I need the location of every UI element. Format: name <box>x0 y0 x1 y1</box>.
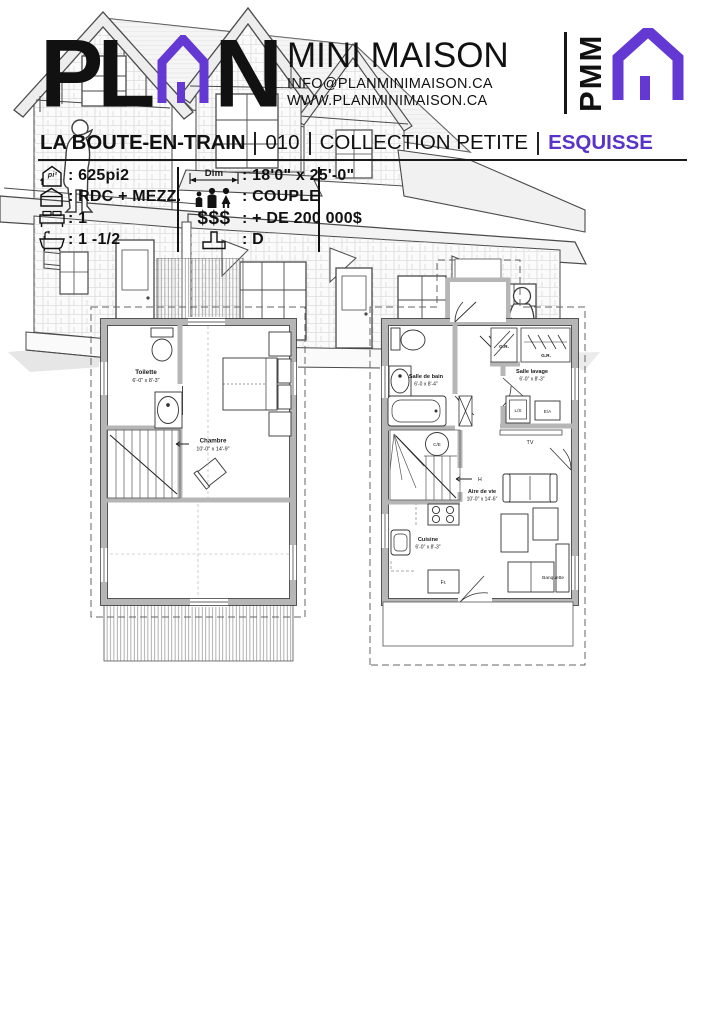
monogram-divider <box>564 32 567 114</box>
monogram-house-icon <box>611 28 685 100</box>
mezz-chambre-label: Chambre <box>200 438 227 445</box>
logo-text-n: N <box>214 26 277 123</box>
brand-website: WWW.PLANMINIMAISON.CA <box>287 93 509 110</box>
header: PL N MINI MAISON INFO@PLANMINIMAISON.CA … <box>40 28 685 120</box>
brand-block: MINI MAISON INFO@PLANMINIMAISON.CA WWW.P… <box>287 28 509 110</box>
specs-divider-1 <box>177 167 179 252</box>
logo-text-pl: PL <box>40 26 149 123</box>
rdc-lavage-label: Salle lavage <box>516 369 548 375</box>
spec-dimensions: Dim : 18'0" x 25'-0" <box>186 165 362 187</box>
brand-email: INFO@PLANMINIMAISON.CA <box>287 76 509 93</box>
dim-label: Dim <box>205 168 224 179</box>
spec-area: pi² : 625pi2 <box>38 165 181 187</box>
rdc-coffee-table <box>501 514 528 552</box>
mezz-bed <box>223 358 277 410</box>
title-bar: LA BOUTE-EN-TRAIN 010 COLLECTION PETITE … <box>40 131 685 155</box>
rdc-rear-porch <box>383 602 573 646</box>
rdc-outer-wall <box>385 322 575 602</box>
spec-dimensions-value: : 18'0" x 25'-0" <box>242 167 354 185</box>
levels-icon <box>38 187 68 207</box>
rdc-fridge-label: Fr. <box>441 580 447 586</box>
rdc-armchair <box>533 508 558 540</box>
mezz-sink <box>155 392 182 428</box>
mezz-toilette-label: Toilette <box>135 369 157 376</box>
mezz-toilette-dims: 6'-0" x 8'-3" <box>132 378 159 384</box>
logo: PL N <box>40 28 277 123</box>
spec-price-value: : + DE 200 000$ <box>242 210 362 228</box>
bed-icon <box>38 209 68 228</box>
spec-levels-value: : RDC + MEZZ. <box>68 188 181 206</box>
rdc-entry-stoop <box>455 259 501 279</box>
rdc-bain-label: Salle de bain <box>409 374 444 380</box>
title-separator <box>537 132 539 155</box>
floor-plan-rdc: Salle de bain 6'-0 x 8'-4" G.R. G.R. Sal… <box>360 256 600 668</box>
monogram-text: PMM <box>573 32 609 114</box>
right-skirt-roof <box>398 150 585 232</box>
title-separator <box>254 132 256 155</box>
rdc-bathtub <box>388 396 446 426</box>
spec-bathrooms-value: : 1 -1/2 <box>68 231 120 249</box>
rdc-linen-column <box>459 396 472 426</box>
plan-sheet: PL N MINI MAISON INFO@PLANMINIMAISON.CA … <box>0 0 721 1023</box>
rdc-banquette-label: Banquette <box>542 575 564 581</box>
plan-name: LA BOUTE-EN-TRAIN <box>40 131 245 155</box>
rdc-vie-label: Aire de vie <box>468 489 496 495</box>
rdc-sink <box>389 366 411 396</box>
price-icon: $$$ <box>186 208 242 230</box>
rdc-vie-dims: 10'-0" x 14'-6" <box>467 497 498 503</box>
rdc-cuisine-dims: 6'-0" x 8'-3" <box>415 545 440 551</box>
rdc-tv-label: TV <box>527 440 534 446</box>
rdc-vestibule-floor <box>450 282 506 322</box>
spec-occupants-value: : COUPLE <box>242 188 320 206</box>
mezz-lower-deck <box>104 605 293 661</box>
rdc-tv-shelf <box>500 430 562 435</box>
spec-price: $$$ : + DE 200 000$ <box>186 208 362 230</box>
plan-number: 010 <box>265 131 299 155</box>
svg-text:pi²: pi² <box>47 172 58 179</box>
spec-levels: : RDC + MEZZ. <box>38 187 181 209</box>
rdc-bain-dims: 6'-0 x 8'-4" <box>414 382 438 388</box>
spec-bedrooms: : 1 <box>38 208 181 230</box>
mezz-chambre-dims: 10'-0" x 14'-9" <box>196 447 229 453</box>
spec-occupants: : COUPLE <box>186 187 362 209</box>
dimensions-icon: Dim <box>186 167 242 185</box>
floor-plan-mezzanine: Toilette 6'-0" x 8'-3" Chambre 10'-0" x … <box>85 258 333 663</box>
spec-area-value: : 625pi2 <box>68 167 129 185</box>
foundation-icon <box>186 231 242 250</box>
specs-divider-2 <box>318 167 320 252</box>
monogram-block: PMM <box>564 28 685 116</box>
left-wall-window <box>60 252 88 294</box>
spec-bathrooms: : 1 -1/2 <box>38 230 181 252</box>
rdc-kitchen-sink <box>391 530 410 555</box>
logo-house-icon <box>157 35 209 103</box>
plan-collection: COLLECTION PETITE <box>320 131 528 155</box>
rdc-lavage-dims: 6'-0" x 8'-3" <box>519 377 544 383</box>
mezz-balcony-deck <box>157 258 243 320</box>
title-separator <box>309 132 311 155</box>
people-icon <box>186 187 242 208</box>
rdc-gr1-label: G.R. <box>499 344 509 350</box>
rdc-gr2-label: G.R. <box>541 353 551 359</box>
brand-name: MINI MAISON <box>287 38 509 73</box>
rdc-cuisine-label: Cuisine <box>418 537 438 543</box>
specs-right-column: Dim : 18'0" x 25'-0" <box>186 165 362 251</box>
specs-left-column: pi² : 625pi2 : RDC + MEZZ. <box>38 165 181 251</box>
rdc-dryer-label: E/A <box>544 409 552 414</box>
spec-foundation-value: : D <box>242 231 264 249</box>
rdc-up-label: H <box>478 477 482 483</box>
bath-icon <box>38 230 68 251</box>
spec-foundation: : D <box>186 230 362 252</box>
rdc-stove <box>428 504 459 525</box>
rdc-toilet <box>391 328 425 350</box>
area-icon: pi² <box>38 165 68 187</box>
plan-stage: ESQUISSE <box>548 131 653 155</box>
rdc-ce-label: C/E <box>433 442 441 447</box>
rdc-washer-label: L/S <box>515 408 522 413</box>
mezz-toilet <box>151 328 173 361</box>
spec-bedrooms-value: : 1 <box>68 210 87 228</box>
title-rule <box>38 159 687 161</box>
rdc-sofa <box>503 474 557 502</box>
